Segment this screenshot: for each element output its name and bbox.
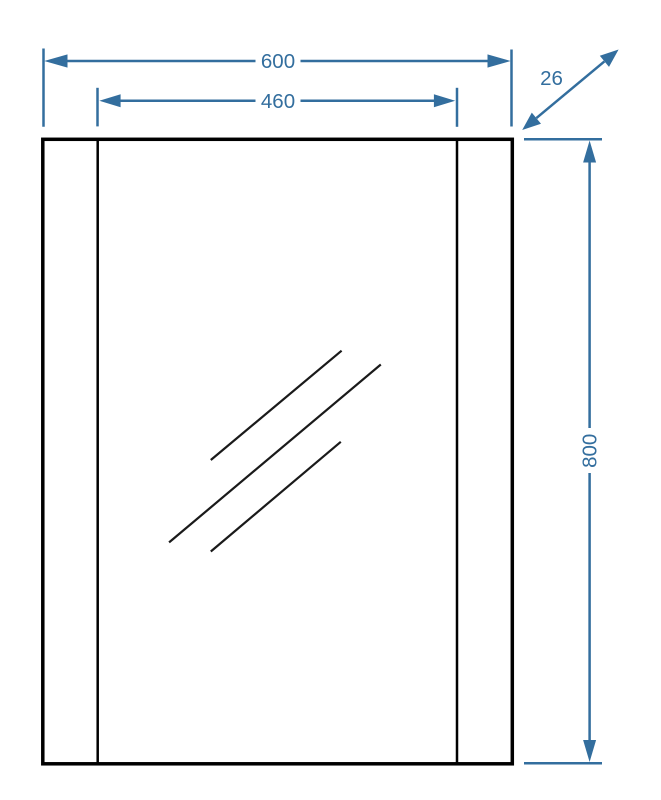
svg-text:600: 600 bbox=[261, 50, 295, 73]
svg-text:26: 26 bbox=[540, 67, 563, 90]
svg-text:460: 460 bbox=[261, 90, 295, 113]
svg-text:800: 800 bbox=[579, 434, 602, 468]
